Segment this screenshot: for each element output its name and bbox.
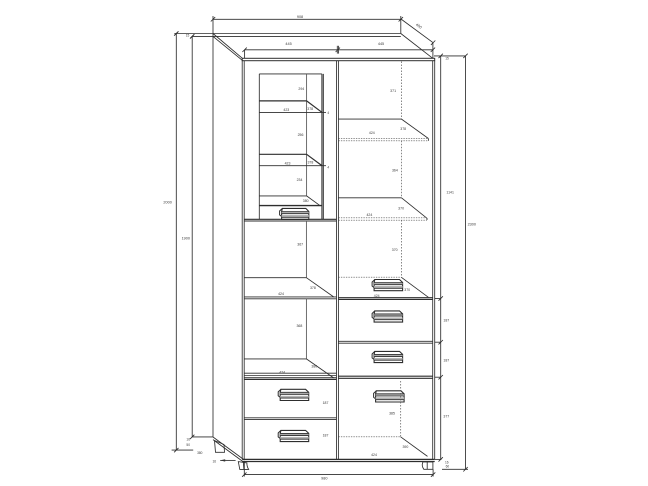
svg-text:424: 424 <box>371 453 377 457</box>
svg-text:370: 370 <box>392 248 398 252</box>
svg-text:424: 424 <box>366 213 372 217</box>
svg-text:234: 234 <box>297 178 303 182</box>
svg-text:256: 256 <box>298 133 304 137</box>
svg-text:16: 16 <box>186 438 190 442</box>
svg-text:378: 378 <box>307 107 313 111</box>
svg-text:15: 15 <box>186 34 190 38</box>
svg-text:50: 50 <box>186 443 190 447</box>
svg-text:1141: 1141 <box>446 191 454 195</box>
svg-text:378: 378 <box>310 286 316 290</box>
svg-text:370: 370 <box>398 207 404 211</box>
svg-text:187: 187 <box>323 434 329 438</box>
svg-text:1900: 1900 <box>182 237 190 241</box>
svg-text:908: 908 <box>297 15 303 19</box>
svg-text:2300: 2300 <box>468 223 476 227</box>
svg-text:367: 367 <box>297 243 303 247</box>
svg-text:445: 445 <box>285 42 291 46</box>
svg-text:187: 187 <box>443 359 449 363</box>
svg-text:423: 423 <box>283 108 289 112</box>
svg-text:370: 370 <box>404 288 410 292</box>
svg-text:380: 380 <box>311 364 317 368</box>
svg-text:16: 16 <box>213 460 217 464</box>
svg-text:60: 60 <box>446 465 450 469</box>
svg-text:15: 15 <box>445 57 449 61</box>
svg-text:380: 380 <box>197 451 203 455</box>
svg-text:4: 4 <box>327 111 329 115</box>
svg-text:423: 423 <box>285 162 291 166</box>
svg-text:187: 187 <box>323 401 329 405</box>
svg-text:390: 390 <box>402 445 408 449</box>
svg-text:4: 4 <box>327 166 329 170</box>
svg-text:294: 294 <box>298 87 304 91</box>
svg-text:980: 980 <box>321 476 327 480</box>
svg-text:424: 424 <box>278 292 284 296</box>
svg-text:371: 371 <box>390 89 396 93</box>
svg-text:424: 424 <box>369 131 375 135</box>
svg-text:385: 385 <box>389 412 395 416</box>
svg-text:364: 364 <box>392 168 398 172</box>
svg-text:380: 380 <box>303 199 309 203</box>
svg-text:378: 378 <box>307 160 313 164</box>
svg-text:378: 378 <box>400 127 406 131</box>
svg-text:424: 424 <box>279 370 285 374</box>
svg-text:377: 377 <box>443 415 449 419</box>
svg-text:187: 187 <box>443 319 449 323</box>
svg-text:368: 368 <box>296 324 302 328</box>
svg-text:400: 400 <box>415 23 422 30</box>
svg-text:445: 445 <box>378 42 384 46</box>
svg-text:2000: 2000 <box>163 201 171 205</box>
